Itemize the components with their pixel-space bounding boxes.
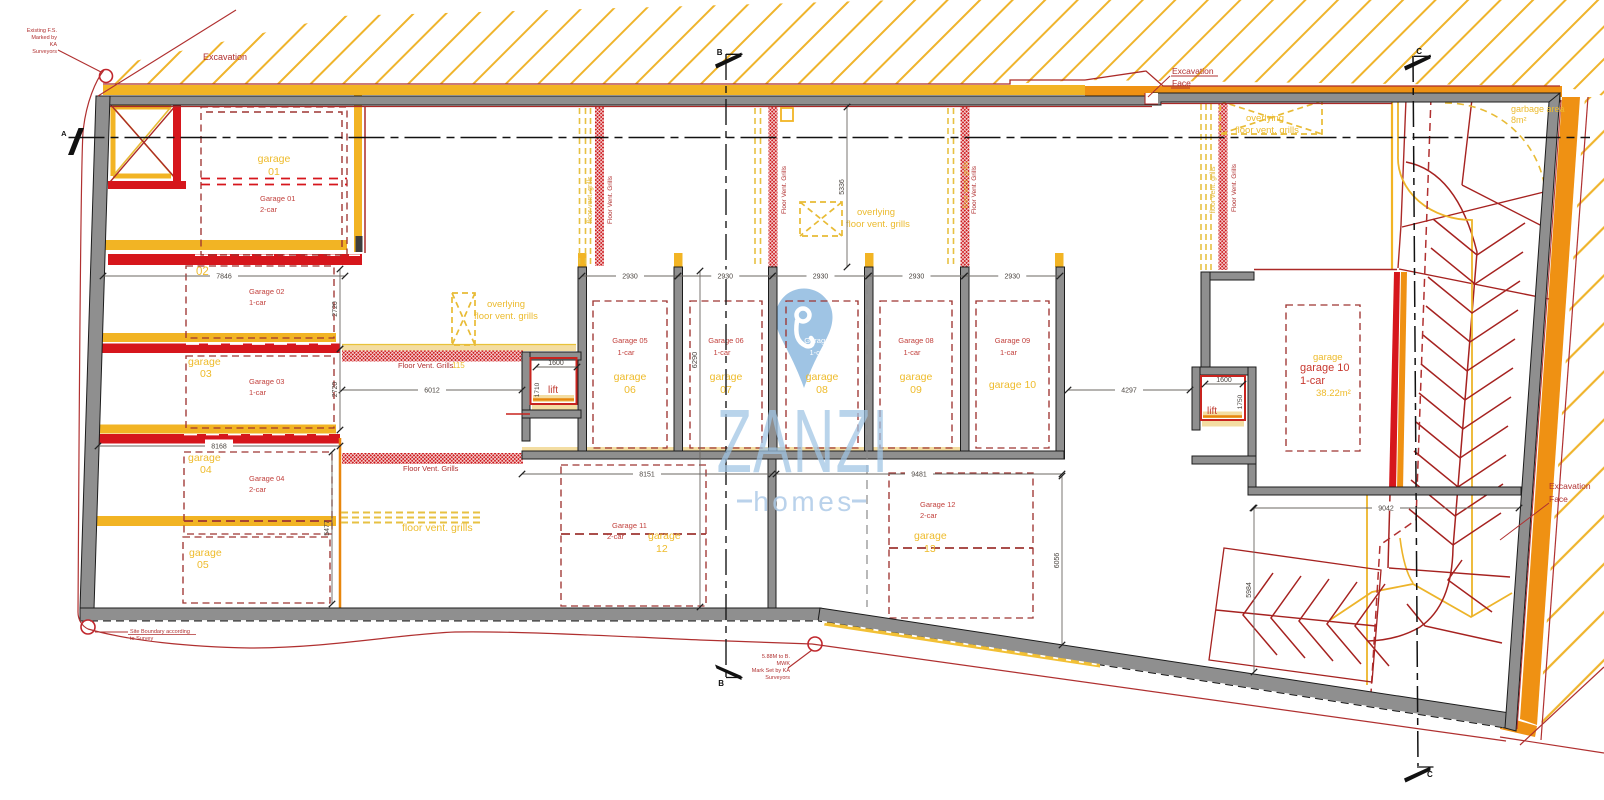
svg-text:2930: 2930 <box>622 273 638 280</box>
svg-text:4297: 4297 <box>1121 387 1137 394</box>
svg-text:2-car: 2-car <box>920 511 938 520</box>
svg-text:2720: 2720 <box>332 301 339 317</box>
svg-text:garage: garage <box>614 371 647 383</box>
svg-text:1-car: 1-car <box>617 348 635 357</box>
svg-text:Marked by: Marked by <box>31 35 57 41</box>
svg-text:Face: Face <box>1549 494 1568 504</box>
svg-text:Garage 12: Garage 12 <box>920 500 955 509</box>
svg-text:1600: 1600 <box>548 360 564 367</box>
svg-text:12: 12 <box>656 543 668 555</box>
svg-text:8151: 8151 <box>639 471 655 478</box>
svg-text:Existing F.S.: Existing F.S. <box>27 28 58 34</box>
svg-text:Floor Vent. Grills: Floor Vent. Grills <box>398 361 454 370</box>
svg-text:7846: 7846 <box>216 273 232 280</box>
svg-text:Garage 11: Garage 11 <box>612 521 647 530</box>
svg-text:Floor Vent. Grills: Floor Vent. Grills <box>403 464 459 473</box>
svg-text:garage: garage <box>188 356 221 368</box>
svg-text:2720: 2720 <box>332 382 339 398</box>
svg-text:9481: 9481 <box>911 471 927 478</box>
svg-text:floor vent. grills: floor vent. grills <box>587 176 594 224</box>
svg-text:04: 04 <box>200 464 212 476</box>
svg-text:13: 13 <box>924 543 936 555</box>
svg-text:1710: 1710 <box>534 382 541 397</box>
svg-text:B: B <box>718 679 724 688</box>
svg-text:1-car: 1-car <box>249 388 267 397</box>
svg-text:C: C <box>1416 47 1422 56</box>
svg-text:lift: lift <box>548 385 558 396</box>
svg-text:1600: 1600 <box>1216 377 1232 384</box>
svg-text:homes: homes <box>753 486 855 517</box>
svg-text:Garage 03: Garage 03 <box>249 377 284 386</box>
svg-text:garage: garage <box>914 530 947 542</box>
svg-text:Face: Face <box>1172 78 1191 88</box>
svg-text:Garage 02: Garage 02 <box>249 287 284 296</box>
svg-text:floor vent. grills: floor vent. grills <box>474 311 538 322</box>
svg-text:1-car: 1-car <box>713 348 731 357</box>
svg-text:5477: 5477 <box>324 520 331 536</box>
svg-text:floor vent. grills: floor vent. grills <box>402 522 473 534</box>
svg-text:KA: KA <box>50 42 58 48</box>
svg-text:06: 06 <box>624 384 636 396</box>
svg-text:floor vent. grills: floor vent. grills <box>1235 125 1299 136</box>
svg-text:Garage 04: Garage 04 <box>249 474 284 483</box>
svg-text:6012: 6012 <box>424 387 440 394</box>
svg-text:floor vent. grills: floor vent. grills <box>963 161 970 209</box>
svg-text:Excavation: Excavation <box>1549 481 1591 491</box>
svg-text:Excavation: Excavation <box>1172 66 1214 76</box>
svg-text:Surveyors: Surveyors <box>32 49 57 55</box>
svg-text:garage: garage <box>806 371 839 383</box>
svg-text:B: B <box>717 48 723 57</box>
svg-text:1-car: 1-car <box>1000 348 1018 357</box>
svg-text:2930: 2930 <box>1004 273 1020 280</box>
svg-text:03: 03 <box>200 368 212 380</box>
svg-text:garage 10: garage 10 <box>1300 362 1350 374</box>
svg-text:2-car: 2-car <box>249 485 267 494</box>
svg-text:1-car: 1-car <box>903 348 921 357</box>
svg-text:6290: 6290 <box>690 352 699 369</box>
svg-text:Mark Set by KA: Mark Set by KA <box>752 668 791 674</box>
svg-text:Excavation: Excavation <box>203 52 247 62</box>
svg-text:garage: garage <box>648 530 681 542</box>
svg-text:Garage 08: Garage 08 <box>898 336 933 345</box>
svg-text:Surveyors: Surveyors <box>765 675 790 681</box>
svg-text:115: 115 <box>452 361 465 370</box>
svg-text:garage: garage <box>900 371 933 383</box>
svg-text:8m²: 8m² <box>1511 115 1527 125</box>
svg-text:garbage area: garbage area <box>1511 104 1565 114</box>
svg-text:2-car: 2-car <box>260 205 278 214</box>
svg-text:Floor Vent. Grills: Floor Vent. Grills <box>1231 163 1238 212</box>
svg-text:Garage 05: Garage 05 <box>612 336 647 345</box>
svg-text:6056: 6056 <box>1054 553 1061 569</box>
svg-text:2930: 2930 <box>909 273 925 280</box>
svg-text:garage: garage <box>258 153 291 165</box>
svg-text:ZANZI: ZANZI <box>717 392 890 492</box>
svg-text:05: 05 <box>197 559 209 571</box>
svg-text:to Survey: to Survey <box>130 636 153 642</box>
svg-text:2930: 2930 <box>717 273 733 280</box>
svg-text:38.22m²: 38.22m² <box>1316 388 1351 399</box>
svg-text:2930: 2930 <box>813 273 829 280</box>
svg-text:Floor Vent. Grills: Floor Vent. Grills <box>971 165 978 214</box>
svg-text:lift: lift <box>1207 406 1217 417</box>
svg-text:garage: garage <box>188 452 221 464</box>
svg-text:garage: garage <box>189 547 222 559</box>
svg-text:8168: 8168 <box>211 443 227 450</box>
svg-text:5984: 5984 <box>1246 582 1253 598</box>
svg-text:09: 09 <box>910 384 922 396</box>
svg-text:1750: 1750 <box>1237 394 1244 409</box>
svg-text:overlying: overlying <box>487 299 525 310</box>
svg-text:1-car: 1-car <box>1300 375 1325 387</box>
svg-text:5.88M to B.: 5.88M to B. <box>762 654 791 660</box>
svg-text:floor vent. grills: floor vent. grills <box>846 219 910 230</box>
svg-text:1-car: 1-car <box>809 348 827 357</box>
svg-text:9042: 9042 <box>1378 505 1394 512</box>
svg-text:garage 10: garage 10 <box>989 379 1036 391</box>
svg-text:C: C <box>1427 770 1433 779</box>
svg-text:floor vent. grills: floor vent. grills <box>1210 166 1217 214</box>
svg-text:1-car: 1-car <box>249 298 267 307</box>
svg-text:A: A <box>61 129 67 138</box>
svg-text:Floor Vent. Grills: Floor Vent. Grills <box>781 165 788 214</box>
svg-text:MWK: MWK <box>777 661 791 667</box>
svg-text:Floor Vent. Grills: Floor Vent. Grills <box>607 175 614 224</box>
svg-text:5336: 5336 <box>839 179 846 195</box>
svg-text:Garage 09: Garage 09 <box>995 336 1030 345</box>
svg-text:2-car: 2-car <box>607 532 625 541</box>
svg-text:overlying: overlying <box>1246 113 1284 124</box>
svg-text:01: 01 <box>268 166 280 178</box>
svg-text:overlying: overlying <box>857 207 895 218</box>
svg-text:Garage 07: Garage 07 <box>804 336 839 345</box>
svg-text:Garage 01: Garage 01 <box>260 194 295 203</box>
